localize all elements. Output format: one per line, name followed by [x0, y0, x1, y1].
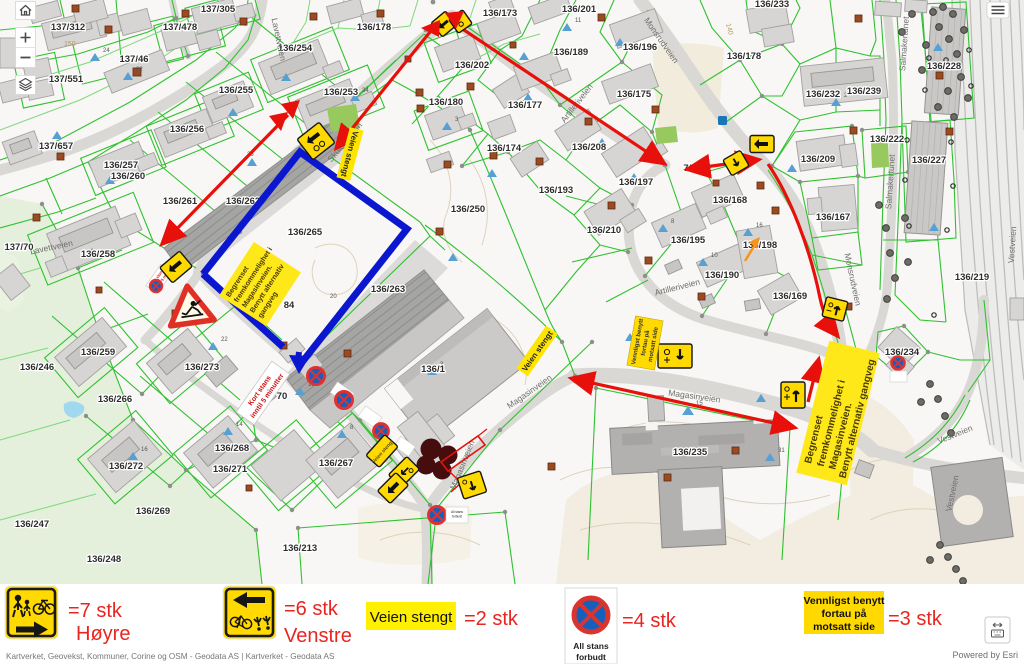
svg-text:31: 31 [778, 448, 785, 454]
svg-text:136/259: 136/259 [81, 347, 115, 358]
svg-text:10: 10 [711, 253, 718, 259]
svg-text:137/657: 137/657 [39, 141, 73, 152]
svg-text:136/177: 136/177 [508, 100, 542, 111]
svg-text:136/257: 136/257 [104, 160, 138, 171]
svg-text:16: 16 [141, 447, 148, 453]
svg-text:136/213: 136/213 [283, 543, 317, 554]
svg-text:136/168: 136/168 [713, 195, 747, 206]
svg-text:136/201: 136/201 [562, 4, 597, 15]
svg-text:136/174: 136/174 [487, 143, 522, 154]
svg-text:136/219: 136/219 [955, 272, 989, 283]
svg-text:136/239: 136/239 [847, 86, 881, 97]
svg-text:forbudt: forbudt [452, 515, 462, 519]
svg-text:136/167: 136/167 [816, 212, 850, 223]
svg-text:136/178: 136/178 [357, 22, 391, 33]
svg-text:=2 stk: =2 stk [464, 608, 519, 630]
svg-text:136/202: 136/202 [455, 60, 489, 71]
svg-text:fortau på: fortau på [822, 608, 867, 620]
svg-text:22: 22 [221, 337, 228, 343]
svg-text:136/189: 136/189 [554, 47, 588, 58]
svg-text:136/248: 136/248 [87, 554, 121, 565]
svg-text:136/272: 136/272 [109, 461, 143, 472]
svg-text:136/209: 136/209 [801, 154, 835, 165]
svg-text:136/269: 136/269 [136, 506, 170, 517]
svg-text:136/255: 136/255 [219, 85, 254, 96]
svg-text:84: 84 [284, 300, 295, 311]
svg-text:136/173: 136/173 [483, 8, 517, 19]
svg-text:136/268: 136/268 [215, 443, 249, 454]
svg-text:136/235: 136/235 [673, 447, 708, 458]
svg-text:136/180: 136/180 [429, 97, 463, 108]
svg-text:137/551: 137/551 [49, 74, 84, 85]
svg-text:136/247: 136/247 [15, 519, 49, 530]
svg-text:136/246: 136/246 [20, 362, 54, 373]
svg-text:150: 150 [64, 41, 76, 48]
svg-text:136/258: 136/258 [81, 249, 115, 260]
svg-text:137/305: 137/305 [201, 4, 236, 15]
svg-text:136/266: 136/266 [98, 394, 132, 405]
svg-text:All stans: All stans [451, 510, 463, 514]
svg-text:136/227: 136/227 [912, 155, 946, 166]
svg-text:136/1: 136/1 [421, 364, 445, 375]
svg-text:136/175: 136/175 [617, 89, 652, 100]
svg-text:136/210: 136/210 [587, 225, 621, 236]
svg-text:forbudt: forbudt [576, 652, 606, 662]
svg-text:136/222: 136/222 [870, 134, 904, 145]
svg-text:Powered by Esri: Powered by Esri [952, 650, 1018, 660]
svg-text:20: 20 [330, 294, 337, 300]
svg-text:motsatt side: motsatt side [813, 621, 875, 633]
svg-text:136/265: 136/265 [288, 227, 323, 238]
svg-text:Veien stengt: Veien stengt [370, 609, 453, 626]
svg-text:Høyre: Høyre [76, 623, 130, 645]
svg-text:136/169: 136/169 [773, 291, 807, 302]
svg-text:Venstre: Venstre [284, 625, 352, 647]
svg-text:136/273: 136/273 [185, 362, 219, 373]
svg-text:136/193: 136/193 [539, 185, 573, 196]
svg-text:136/198: 136/198 [743, 240, 777, 251]
svg-text:137/478: 137/478 [163, 22, 197, 33]
svg-text:136/253: 136/253 [324, 87, 358, 98]
svg-text:136/256: 136/256 [170, 124, 204, 135]
svg-text:70: 70 [277, 391, 288, 402]
svg-text:24: 24 [103, 48, 110, 54]
svg-text:136/208: 136/208 [572, 142, 606, 153]
svg-text:136/233: 136/233 [755, 0, 789, 10]
svg-text:16: 16 [756, 223, 763, 229]
svg-text:136/195: 136/195 [671, 235, 706, 246]
svg-text:136/250: 136/250 [451, 204, 485, 215]
svg-text:137/312: 137/312 [51, 22, 85, 33]
svg-text:136/228: 136/228 [927, 61, 961, 72]
svg-text:Kartverket, Geovekst, Kommuner: Kartverket, Geovekst, Kommuner, Corine o… [6, 652, 335, 661]
svg-text:137/46: 137/46 [119, 54, 148, 65]
svg-text:Vennligst benytt: Vennligst benytt [803, 595, 885, 607]
svg-text:136/263: 136/263 [371, 284, 405, 295]
svg-text:136/197: 136/197 [619, 177, 653, 188]
svg-text:=3 stk: =3 stk [888, 608, 943, 630]
svg-text:136/260: 136/260 [111, 171, 145, 182]
svg-text:136/196: 136/196 [623, 42, 657, 53]
svg-text:14: 14 [236, 422, 243, 428]
svg-text:22: 22 [136, 67, 143, 73]
svg-text:136/267: 136/267 [319, 458, 353, 469]
svg-text:11: 11 [575, 18, 582, 24]
svg-text:136/232: 136/232 [806, 89, 840, 100]
svg-text:=7 stk: =7 stk [68, 600, 123, 622]
svg-text:136/178: 136/178 [727, 51, 761, 62]
svg-text:=6 stk: =6 stk [284, 598, 339, 620]
svg-text:136/190: 136/190 [705, 270, 739, 281]
svg-text:136/271: 136/271 [213, 464, 248, 475]
svg-text:All stans: All stans [573, 641, 609, 651]
svg-text:136/234: 136/234 [885, 347, 920, 358]
svg-text:=4 stk: =4 stk [622, 610, 677, 632]
svg-text:136/261: 136/261 [163, 196, 198, 207]
svg-text:34: 34 [362, 88, 369, 94]
